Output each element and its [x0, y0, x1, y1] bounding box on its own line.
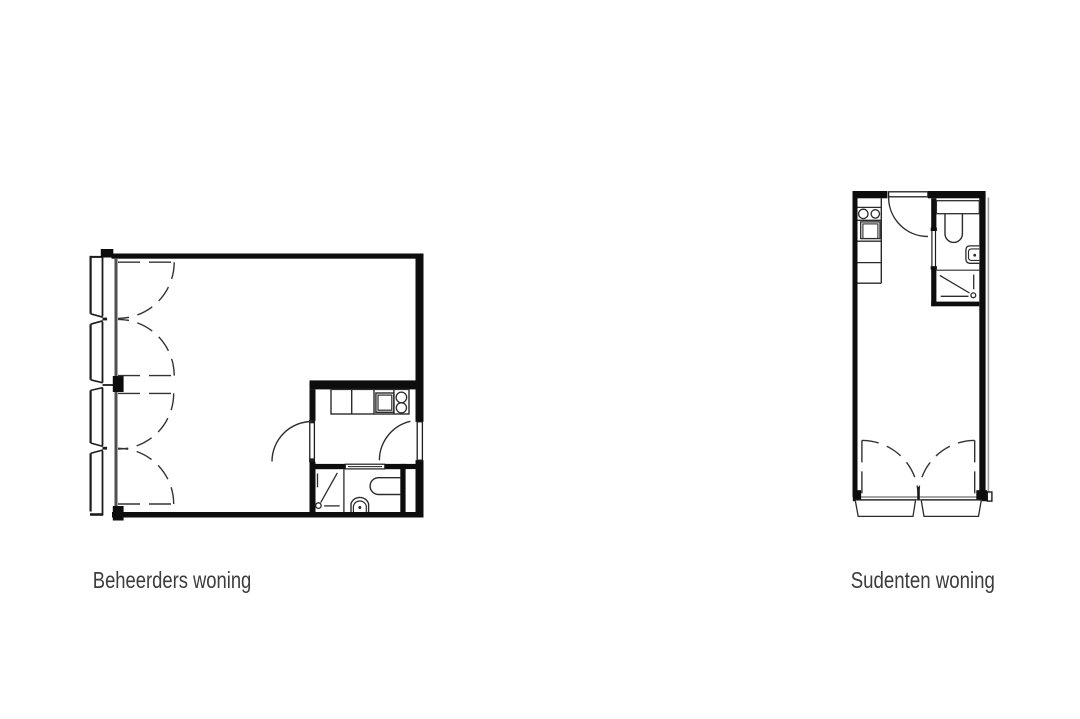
svg-text:Beheerders woning: Beheerders woning — [93, 567, 252, 593]
svg-text:Sudenten woning: Sudenten woning — [851, 567, 995, 593]
